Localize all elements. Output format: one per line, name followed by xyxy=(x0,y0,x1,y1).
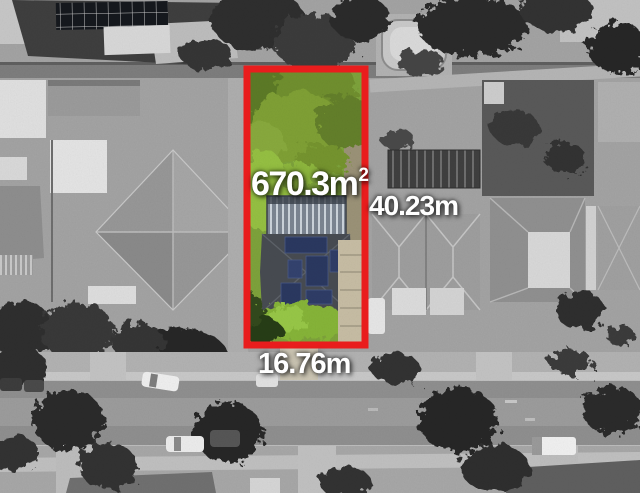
photo-grain-overlay xyxy=(0,0,640,493)
area-superscript: 2 xyxy=(358,165,369,186)
aerial-photo-canvas xyxy=(0,0,640,493)
area-label: 670.3m2 xyxy=(251,167,369,201)
side-length-label: 40.23m xyxy=(369,192,458,220)
frontage-length-label: 16.76m xyxy=(258,350,350,379)
area-value: 670.3m xyxy=(251,165,357,203)
aerial-photo: 670.3m2 40.23m 16.76m xyxy=(0,0,640,493)
